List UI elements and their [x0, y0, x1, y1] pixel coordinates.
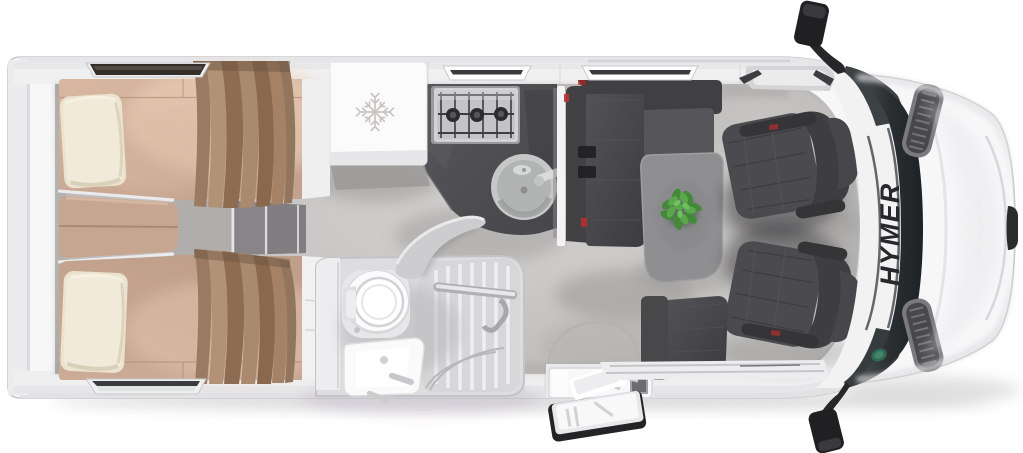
- svg-text:HYMER: HYMER: [875, 182, 905, 286]
